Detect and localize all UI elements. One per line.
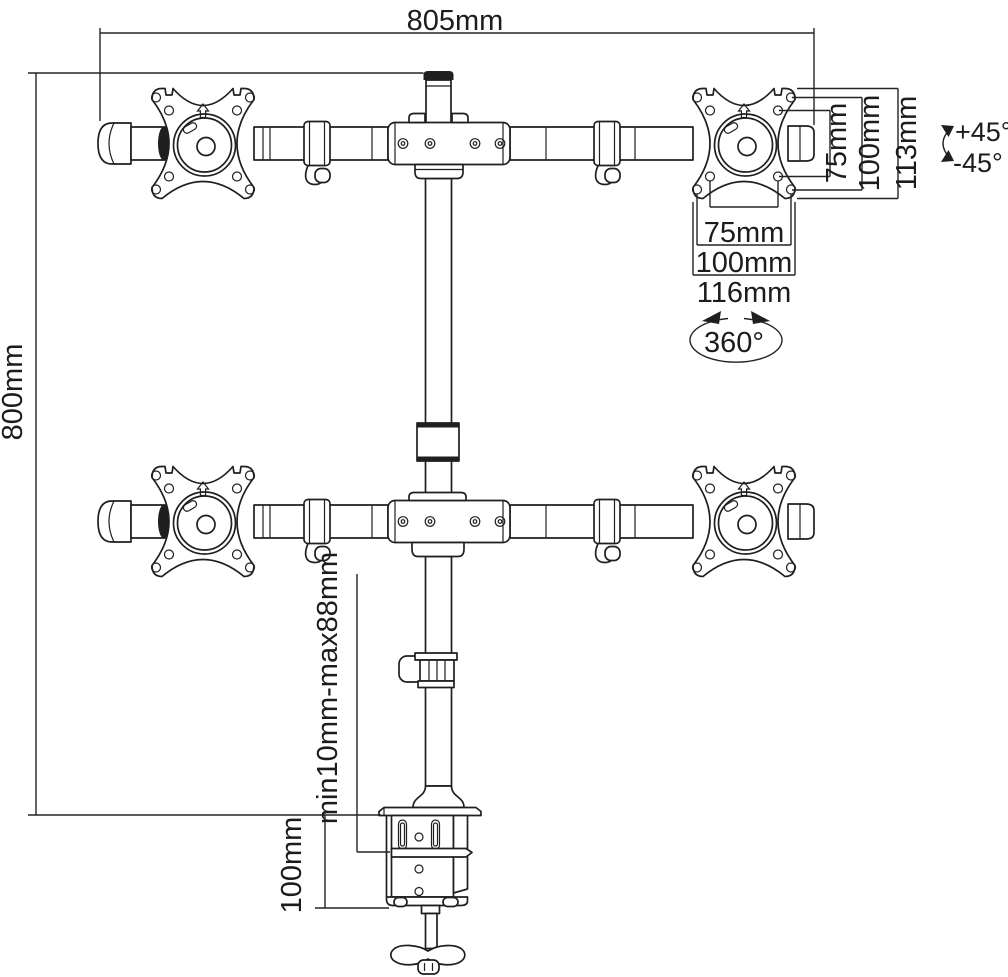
tilt-arrow-up-icon [941, 125, 954, 137]
pole-base-dome [413, 786, 464, 808]
tilt-down-label: -45° [953, 148, 1003, 178]
vesa-vertical-inner-label: 75mm [821, 103, 853, 184]
dimension-overall-height: 800mm [0, 73, 424, 815]
pole-lower [426, 557, 452, 656]
vesa-horizontal-outer-label: 100mm [696, 247, 793, 279]
swivel-annotation: 360° [690, 311, 782, 362]
height-adjuster-ring [399, 653, 457, 688]
overall-height-label: 800mm [0, 344, 29, 441]
dimension-clamp-height: 100mm [276, 815, 389, 913]
rotate-arrow-right-icon [751, 311, 770, 324]
plate-width-label: 116mm [697, 277, 792, 309]
vesa-horizontal-inner-label: 75mm [704, 217, 785, 249]
dimension-vesa-horizontal: 75mm 100mm 116mm [693, 181, 795, 309]
clamp-screw-rod [426, 914, 438, 949]
mount-dimension-diagram: 805mm 800mm 75mm 100mm 113mm +45° -45° 7… [0, 0, 1008, 977]
tilt-annotation: +45° -45° [941, 117, 1008, 178]
clamp-range-label: min10mm-max88mm [312, 552, 344, 824]
swivel-label: 360° [704, 327, 764, 359]
pole-coupler [417, 423, 459, 461]
pole-top-cap [424, 71, 454, 80]
clamp-height-label: 100mm [276, 817, 308, 914]
tilt-up-label: +45° [955, 117, 1008, 147]
plate-height-label: 113mm [891, 96, 923, 191]
clamp-lower-jaw [392, 849, 473, 858]
vesa-vertical-outer-label: 100mm [854, 95, 886, 192]
desk-clamp [379, 786, 481, 974]
rotate-arrow-left-icon [702, 311, 721, 324]
clamp-top-plate [379, 808, 481, 816]
overall-width-label: 805mm [407, 5, 504, 37]
top-crossbar [98, 89, 814, 199]
bottom-crossbar [98, 467, 814, 577]
pole-upper [426, 179, 452, 424]
dimension-clamp-range: min10mm-max88mm [312, 552, 390, 852]
